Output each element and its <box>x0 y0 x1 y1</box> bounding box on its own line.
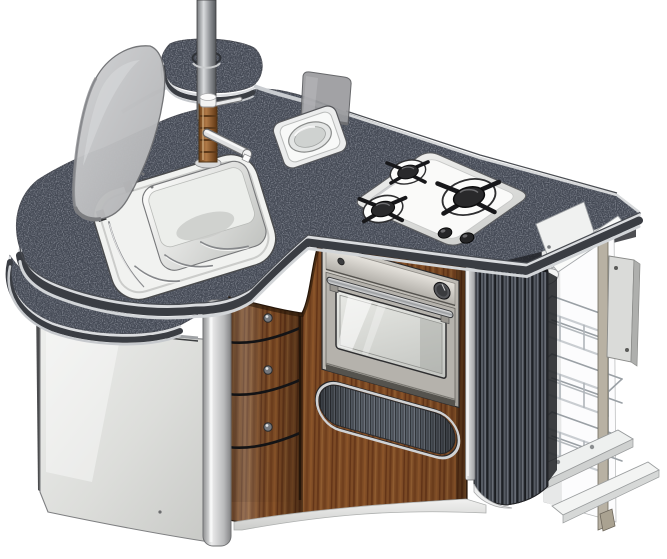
corner-post <box>203 300 231 546</box>
mounting-plate <box>607 256 640 366</box>
cad-render-stage: Compact kitchen unit - isometric CAD ren… <box>0 0 667 559</box>
tambour-column <box>466 267 558 508</box>
aluminium-trim <box>466 267 476 480</box>
kitchen-unit-render: Compact kitchen unit - isometric CAD ren… <box>0 0 667 559</box>
